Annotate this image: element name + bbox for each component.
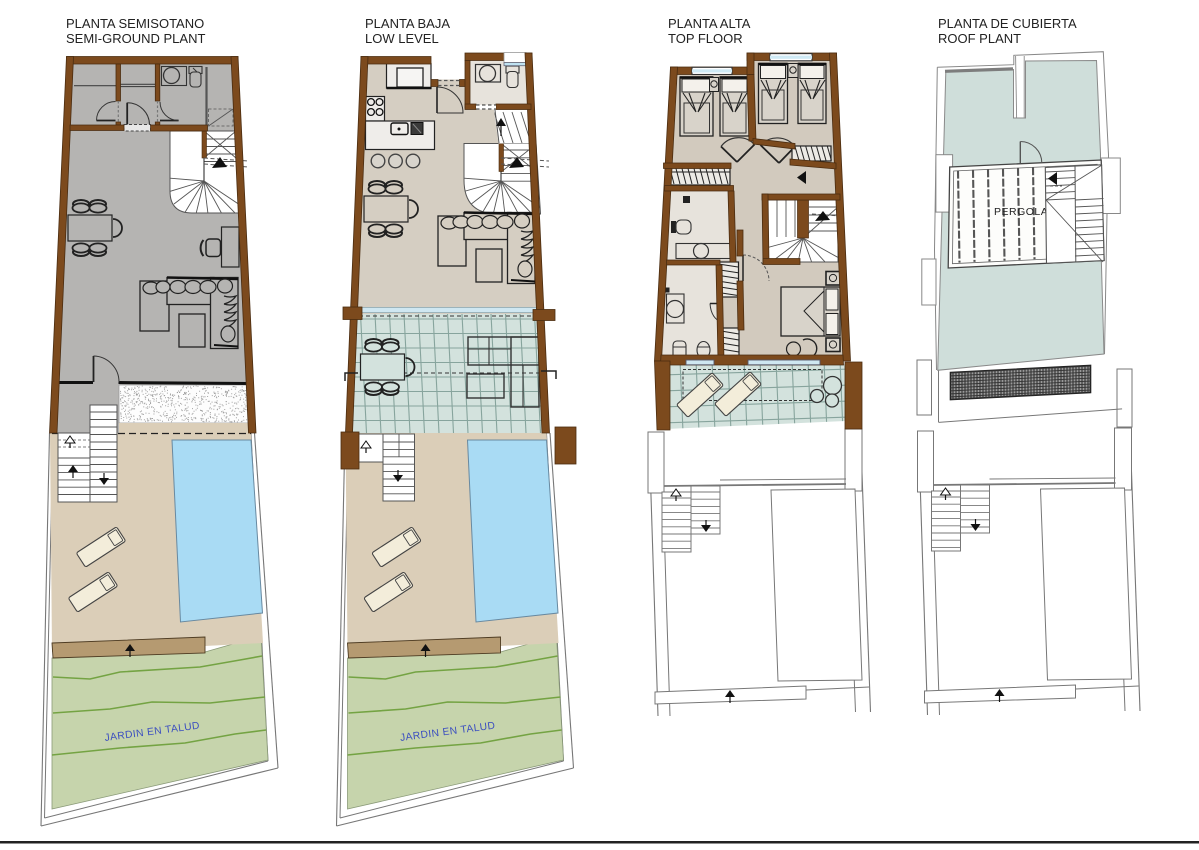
svg-text:PLANTA BAJA: PLANTA BAJA [365, 16, 450, 31]
svg-text:PLANTA DE CUBIERTA: PLANTA DE CUBIERTA [938, 16, 1077, 31]
svg-text:PLANTA ALTA: PLANTA ALTA [668, 16, 751, 31]
svg-text:ROOF PLANT: ROOF PLANT [938, 31, 1021, 46]
svg-text:PERGOLA: PERGOLA [994, 206, 1048, 218]
svg-text:PLANTA SEMISOTANO: PLANTA SEMISOTANO [66, 16, 204, 31]
svg-text:LOW LEVEL: LOW LEVEL [365, 31, 439, 46]
svg-text:SEMI-GROUND PLANT: SEMI-GROUND PLANT [66, 31, 205, 46]
svg-text:TOP FLOOR: TOP FLOOR [668, 31, 743, 46]
